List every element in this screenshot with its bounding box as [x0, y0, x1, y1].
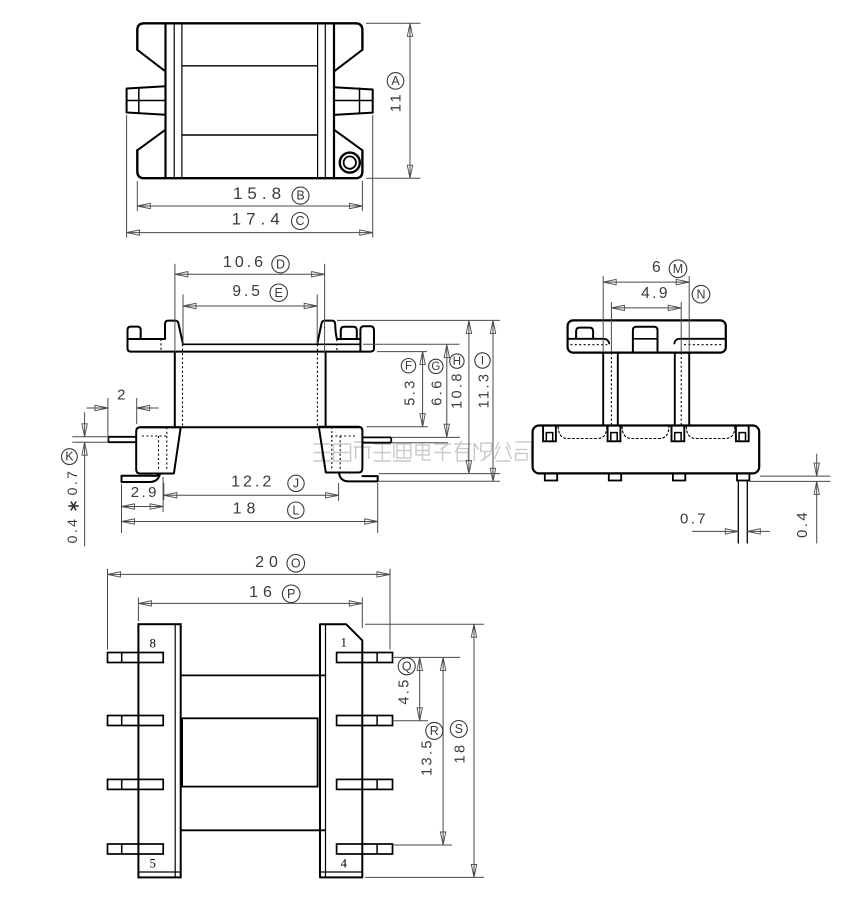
svg-text:6.6: 6.6	[429, 378, 445, 405]
svg-text:K: K	[65, 450, 74, 464]
svg-text:5: 5	[150, 856, 156, 870]
svg-text:D: D	[276, 257, 285, 271]
svg-text:B: B	[296, 189, 304, 203]
svg-text:L: L	[292, 503, 299, 517]
svg-text:13.5: 13.5	[420, 738, 436, 776]
svg-text:P: P	[287, 587, 295, 601]
svg-text:O: O	[291, 556, 301, 570]
svg-text:0.4: 0.4	[794, 510, 811, 538]
svg-text:J: J	[293, 476, 299, 490]
svg-text:1: 1	[341, 636, 347, 650]
svg-text:8: 8	[150, 636, 156, 650]
svg-text:5.3: 5.3	[402, 378, 418, 405]
svg-text:10.6: 10.6	[223, 254, 266, 271]
svg-text:9.5: 9.5	[232, 283, 263, 300]
svg-text:I: I	[481, 355, 484, 367]
svg-text:0.7: 0.7	[680, 511, 708, 528]
svg-text:N: N	[696, 287, 705, 301]
svg-text:11.3: 11.3	[476, 372, 492, 409]
svg-text:15.8: 15.8	[233, 184, 286, 203]
svg-text:16: 16	[249, 584, 277, 601]
svg-text:S: S	[455, 722, 463, 736]
svg-text:2.9: 2.9	[131, 484, 159, 501]
svg-text:2: 2	[117, 386, 128, 403]
svg-text:0.4: 0.4	[64, 517, 80, 544]
svg-text:4.9: 4.9	[641, 285, 670, 302]
svg-text:Q: Q	[402, 659, 412, 673]
svg-text:12.2: 12.2	[231, 474, 274, 491]
svg-text:A: A	[391, 74, 400, 88]
svg-text:M: M	[673, 262, 683, 276]
svg-text:10.8: 10.8	[449, 371, 465, 409]
svg-text:17.4: 17.4	[232, 209, 285, 228]
svg-text:C: C	[295, 214, 304, 228]
svg-text:4.5: 4.5	[397, 677, 413, 704]
svg-text:18: 18	[452, 743, 468, 764]
svg-text:20: 20	[255, 554, 283, 571]
svg-text:18: 18	[233, 501, 261, 518]
svg-text:F: F	[405, 361, 412, 373]
svg-text:G: G	[431, 361, 440, 373]
svg-text:E: E	[275, 286, 283, 300]
svg-text:4: 4	[341, 856, 348, 870]
svg-text:0.7: 0.7	[64, 469, 80, 496]
svg-text:R: R	[430, 724, 439, 738]
svg-text:H: H	[453, 356, 461, 368]
svg-text:6: 6	[652, 259, 663, 276]
svg-text:11: 11	[387, 92, 404, 112]
